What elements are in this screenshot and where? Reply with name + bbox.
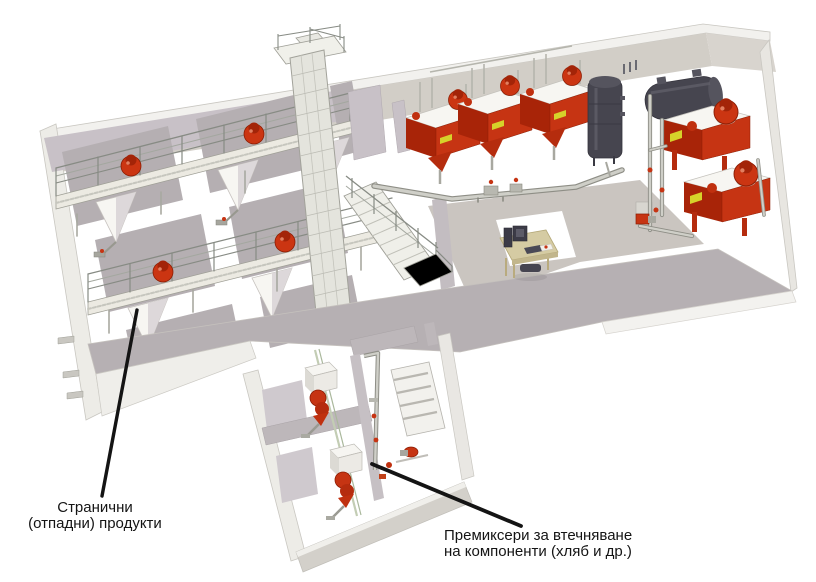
annotation-side-products: Странични (отпадни) продукти (14, 500, 176, 532)
annotation-premixers: Премиксери за втечняване на компоненти (… (444, 528, 684, 560)
bucket-elevator-tower (274, 24, 352, 332)
premixer-unit (326, 444, 362, 520)
bay-staircase (391, 362, 445, 436)
plant-3d-view (0, 0, 816, 582)
annotation-premixers-line2: на компоненти (хляб и др.) (444, 544, 684, 560)
annotation-side-products-line2: (отпадни) продукти (14, 516, 176, 532)
facility-diagram: Странични (отпадни) продукти Премиксери … (0, 0, 816, 582)
annotation-premixers-line1: Премиксери за втечняване (444, 528, 684, 544)
annotation-side-products-line1: Странични (14, 500, 176, 516)
premixer-room (243, 322, 474, 572)
vertical-tank (588, 76, 625, 176)
right-mixer-units (664, 98, 770, 236)
